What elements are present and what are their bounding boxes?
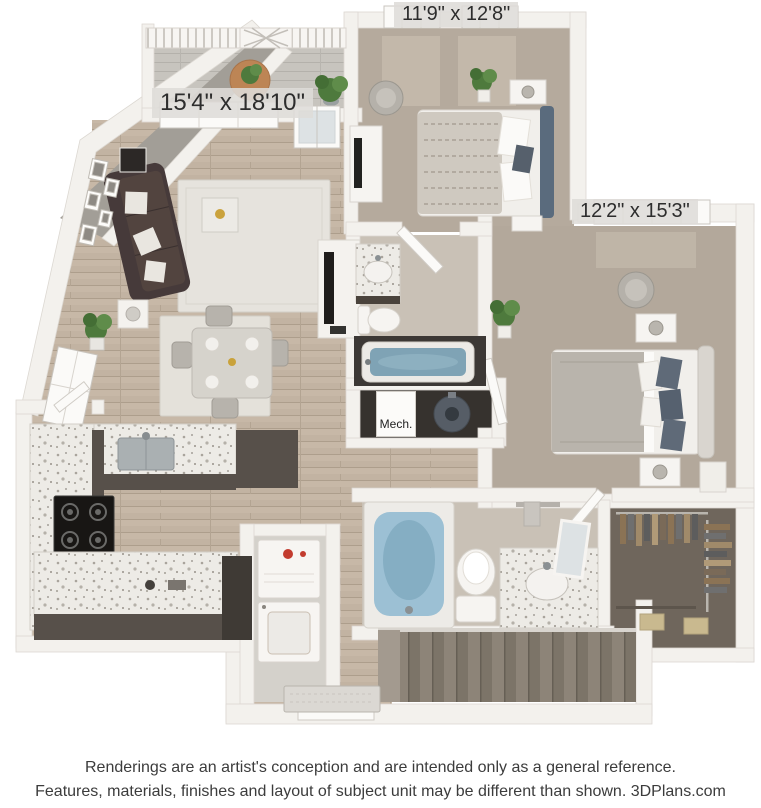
- bedroom2-side-table: [700, 462, 726, 492]
- laundry-top-wall: [240, 524, 340, 536]
- bed2: [552, 346, 714, 458]
- bedroom2-right-wall: [736, 204, 754, 662]
- living-room-dimensions-label: 15'4" x 18'10": [152, 88, 313, 118]
- mech-bottom-wall: [346, 438, 504, 448]
- stairs: [378, 630, 636, 702]
- bath1-vanity-face: [356, 296, 400, 304]
- counter-end-cabinet: [236, 430, 298, 488]
- washer-door: [268, 612, 310, 654]
- bath1-toilet: [358, 306, 400, 334]
- dryer-knob-red2: [300, 551, 306, 557]
- floorplan-page: { "floorplan": { "labels": { "bedroom1_d…: [0, 0, 761, 808]
- stairs-landing: [378, 630, 400, 702]
- bedroom1-right-wall: [570, 12, 586, 220]
- bed2-accent-pillow3: [660, 419, 686, 452]
- bed2-blanket: [552, 352, 648, 452]
- area-rug: [178, 180, 330, 312]
- bed2-headboard: [698, 346, 714, 458]
- bedroom2-light-patch: [596, 232, 696, 268]
- coffee-table-flowers: [215, 209, 225, 219]
- bed1-nightstand-bottom: [512, 216, 542, 231]
- bed1-patterned-blanket: [418, 112, 502, 214]
- bed2-lamp-bottom: [653, 465, 667, 479]
- balcony-plant3: [315, 75, 329, 89]
- laundry-right-wall: [326, 524, 340, 704]
- bed2-lamp-top: [649, 321, 663, 335]
- bed1-headboard: [540, 106, 554, 218]
- bath2-toilet: [456, 549, 496, 622]
- side-table-black: [120, 148, 146, 172]
- bedroom1-dresser: [350, 126, 382, 202]
- storage-box: [640, 614, 664, 630]
- dryer-knob-red: [283, 549, 293, 559]
- mech-room-label: Mech.: [376, 391, 416, 437]
- bath1-top-wall-right: [460, 222, 492, 236]
- hall-bottom-wall-right: [612, 488, 754, 502]
- disclaimer-line-1: Renderings are an artist's conception an…: [0, 756, 761, 780]
- table-centerpiece: [228, 358, 236, 366]
- kettle: [145, 580, 155, 590]
- tv-desk: [318, 240, 360, 338]
- dining-area: [160, 306, 288, 418]
- disclaimer-line-2: Features, materials, finishes and layout…: [0, 780, 761, 804]
- bath1-top-wall-left: [346, 222, 402, 236]
- water-heater-top: [445, 407, 459, 421]
- hall-bottom-wall-left: [352, 488, 596, 502]
- balcony-table-plant2: [250, 64, 262, 76]
- counter-tray: [168, 580, 186, 590]
- floorplan-rendering: 11'9" x 12'8" 15'4" x 18'10" 12'2" x 15'…: [0, 0, 761, 745]
- bed1: [418, 106, 554, 218]
- washer-unit: [258, 602, 320, 662]
- floorplan-canvas: [0, 0, 761, 745]
- bottom-cabinet-face: [34, 614, 238, 640]
- dryer-unit: [258, 540, 320, 598]
- bed1-lamp-top: [522, 86, 534, 98]
- bedroom2-dimensions-label: 12'2" x 15'3": [572, 199, 698, 224]
- bath2-closet-divider: [598, 500, 610, 630]
- balcony-plant2: [332, 76, 348, 92]
- stairs-top-edge: [378, 628, 636, 632]
- towel: [524, 502, 540, 526]
- entry-door-mat: [284, 686, 380, 712]
- closet-shelf: [616, 606, 696, 609]
- bath1-faucet: [375, 255, 381, 261]
- kitchen-sink: [118, 432, 174, 470]
- mirror: [554, 520, 589, 577]
- bedroom1-tv: [354, 138, 362, 188]
- water-heater-pipe: [448, 392, 456, 398]
- bath1-sink: [364, 261, 392, 283]
- bottom-end-cabinet: [222, 556, 252, 640]
- storage-box-2: [684, 618, 708, 634]
- bed2-accent-pillow2: [658, 389, 683, 421]
- bath2-faucet: [543, 562, 551, 570]
- kitchen-top-wall-right: [92, 400, 104, 414]
- bath2-tub: [364, 502, 454, 628]
- bath1-tub: [354, 336, 486, 386]
- bottom-counter: [34, 552, 238, 616]
- stove: [54, 496, 114, 554]
- bedroom1-dimensions-label: 11'9" x 12'8": [394, 2, 518, 27]
- end-table-lamp: [126, 307, 140, 321]
- tv: [324, 252, 334, 324]
- bedroom2-chair-seat: [625, 279, 647, 301]
- bedroom1-chair-seat: [376, 88, 396, 108]
